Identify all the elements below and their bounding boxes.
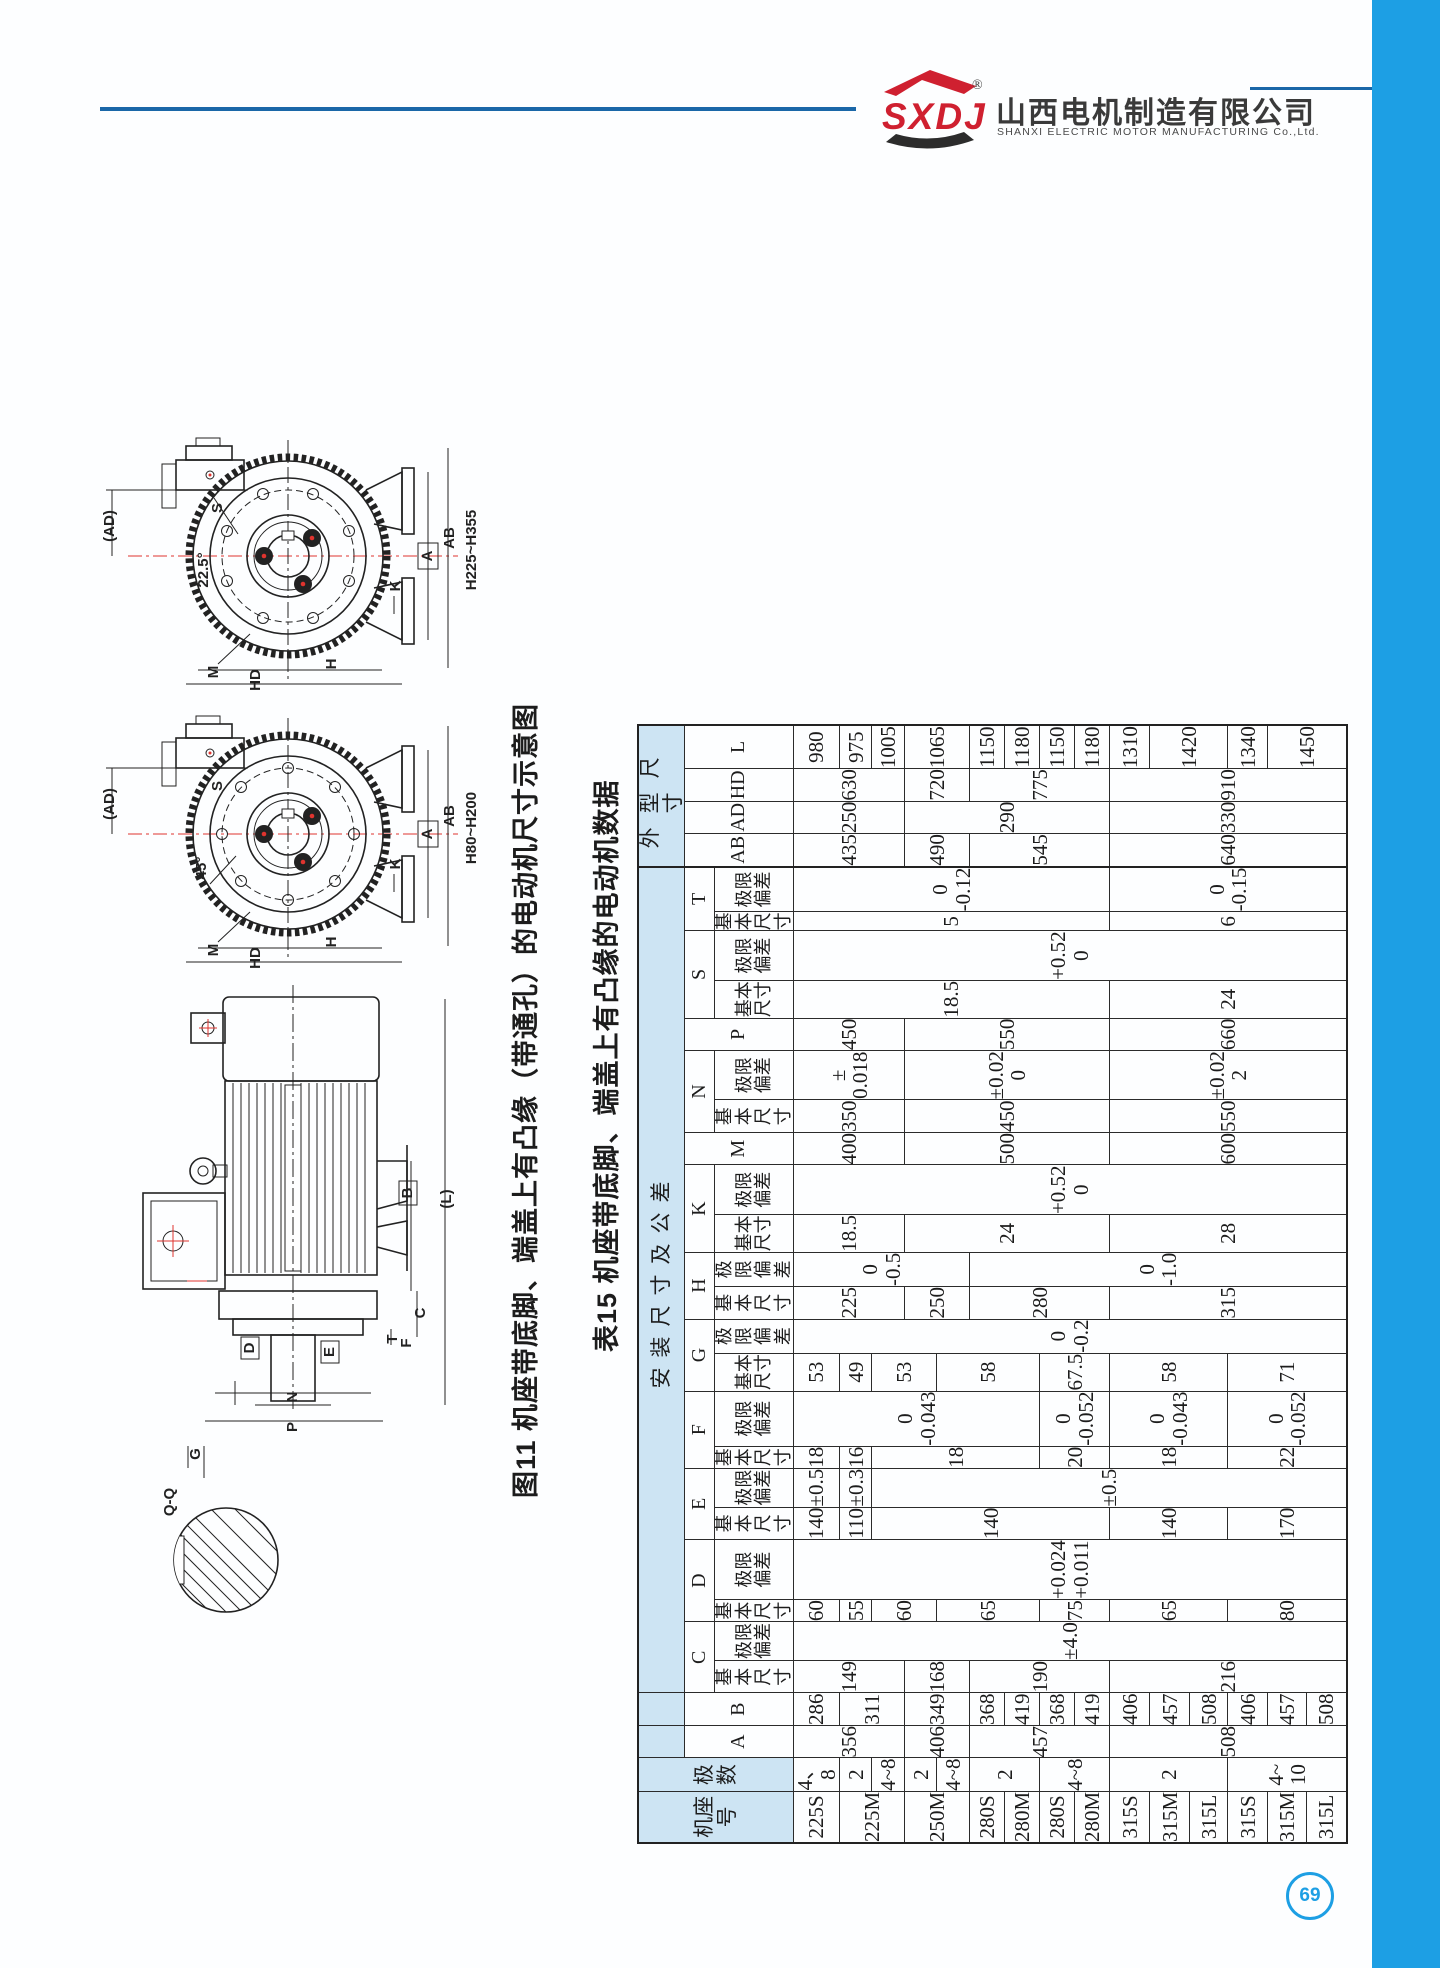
table-cell: 80 [1228,1600,1347,1622]
section-title-qq: Q-Q [161,1488,178,1517]
table-cell: 450 [794,1018,905,1051]
table-cell: 6 [1110,912,1347,931]
table-cell: 216 [1110,1660,1347,1693]
dim-label-ab: AB [441,805,458,827]
table-cell: ±0.3 [840,1468,872,1507]
table-cell: 550 [1110,1100,1347,1133]
table-header-cell: G [685,1319,715,1391]
table-header-cell: P [685,1018,794,1051]
table-cell: 508 [1307,1693,1347,1726]
table-header-cell: 基本 尺寸 [715,1660,794,1693]
dim-label-k: K [387,580,404,591]
dim-label-a: A [419,550,436,561]
table-cell: 71 [1228,1353,1347,1391]
dim-label-s: S [209,781,226,791]
table-cell: 330 [1110,801,1347,834]
table-cell: 250 [905,1287,970,1320]
table-cell: 1180 [1005,725,1040,769]
registered-mark: ® [972,78,983,94]
dimension-table: 机座 号极数安装尺寸及公差外型尺寸ABCDEFGHKMNPSTABADHDL基本… [637,724,1348,1844]
dim-label-a: A [419,828,436,839]
table-cell: 280S [1040,1791,1075,1843]
dim-label-m: M [205,944,222,957]
dim-label-h: H [323,659,340,670]
table-header-cell: L [685,725,794,769]
table-cell: 58 [1110,1353,1228,1391]
table-cell: 65 [1110,1600,1228,1622]
table-cell: 640 [1110,834,1347,867]
table-header-cell: AD [685,801,794,834]
table-cell: 368 [1040,1693,1075,1726]
table-cell: 5 [794,912,1110,931]
table-cell: 24 [905,1215,1110,1253]
table-cell: 4~ 10 [1228,1758,1347,1791]
terminal-box [143,1193,225,1289]
table-cell: 4~8 [872,1758,905,1791]
header-rule-left [100,107,856,111]
table-cell: 1340 [1228,725,1268,769]
dim-label-g: G [187,1448,204,1460]
table-header-cell: 极限 偏差 [715,1051,794,1100]
table-cell: 22 [1228,1446,1347,1468]
table-header-cell [638,1693,685,1726]
table-cell: 406 [1110,1693,1150,1726]
table-cell: ±0.5 [794,1468,840,1507]
table-cell: 315S [1110,1791,1150,1843]
end-view-geometry [106,438,458,684]
table-header-cell: 基本 尺寸 [715,1600,794,1622]
table-cell: 356 [794,1725,905,1758]
table-cell: 18 [794,1446,840,1468]
table-cell: ±0.5 [872,1468,1347,1507]
angle-label: 45° [193,857,210,880]
table-cell: 53 [794,1353,840,1391]
shaft-section-detail: G Q-Q [148,1438,288,1648]
table-cell: 140 [872,1507,1110,1540]
dim-label-k: K [387,858,404,869]
dim-label-c: C [412,1307,429,1318]
table-header-cell: 外型尺寸 [638,725,685,867]
table-cell: 0 -0.043 [794,1391,1040,1446]
series-label-h80-h200: H80~H200 [463,792,480,864]
table-cell: 406 [1228,1693,1268,1726]
eye-bolt [190,1158,227,1184]
table-cell: 75 [1040,1600,1110,1622]
table-header-cell: 基本 尺寸 [715,1215,794,1253]
table-header-cell: 基本 尺寸 [715,980,794,1018]
table-cell: 457 [970,1725,1110,1758]
table-cell: 49 [840,1353,872,1391]
table-cell: 368 [970,1693,1005,1726]
table-header-cell: 基本 尺寸 [715,1446,794,1468]
table-cell: 18.5 [794,980,1110,1018]
company-name-en: SHANXI ELECTRIC MOTOR MANUFACTURING Co.,… [997,126,1320,138]
table-header-cell: F [685,1391,715,1468]
dim-label-e: E [321,1347,338,1357]
table-cell: 280M [1005,1791,1040,1843]
table-cell: 400 [794,1132,905,1165]
table-cell: 280 [970,1287,1110,1320]
table-cell: 1005 [872,725,905,769]
table-cell: ±0.02 0 [905,1051,1110,1100]
table-cell: 4~8 [1040,1758,1110,1791]
table-cell: 250M [905,1791,970,1843]
table-cell: 775 [970,769,1110,802]
table-cell: 60 [794,1600,840,1622]
table-cell: 450 [905,1100,1110,1133]
catalog-page: { "header": { "logo_text": "SXDJ", "reg_… [0,0,1440,1968]
series-label-h225-h355: H225~H355 [463,510,480,590]
dim-label-m: M [205,666,222,679]
table-cell: 2 [840,1758,872,1791]
table-header-cell: 极限 偏差 [715,1622,794,1661]
table-cell: +0.52 0 [794,931,1347,981]
table-header-cell: T [685,867,715,931]
table-header-cell: 基本 尺寸 [715,1100,794,1133]
table-cell: 435 [794,834,905,867]
table-cell: 0 -1.0 [970,1252,1347,1286]
table-cell: 18 [872,1446,1040,1468]
table-cell: ±4.0 [794,1622,1347,1661]
table-cell: 149 [794,1660,905,1693]
end-view-drawing-h225-h355: A AB K H HD (AD) 22.5° S M H225~H355 [98,438,480,690]
dim-label-hd: HD [247,947,264,969]
table-cell: 190 [970,1660,1110,1693]
dim-label-f: F [398,1338,415,1347]
dimension-lines [106,726,448,962]
table-header-cell: 极限 偏差 [715,931,794,981]
table-cell: 280M [1075,1791,1110,1843]
table-cell: 545 [970,834,1110,867]
dim-label-h: H [323,937,340,948]
table-header-cell: S [685,931,715,1018]
section-geometry [128,1426,316,1686]
end-view-drawing-h80-h200: A AB K H HD (AD) 45° S M H80~H200 [98,716,480,968]
dim-label-b: B [399,1187,416,1198]
angle-label: 22.5° [195,552,212,587]
table-cell: ± 0.018 [794,1051,905,1100]
dimension-table-rotated: 机座 号极数安装尺寸及公差外型尺寸ABCDEFGHKMNPSTABADHDL基本… [637,724,1348,1844]
table-header-cell: 基本 尺寸 [715,1287,794,1320]
terminal-box [162,716,244,786]
dim-label-p: P [284,1422,301,1432]
dim-label-n: N [284,1392,301,1403]
blue-sidebar [1372,0,1440,1968]
table-cell: 630 [794,769,905,802]
table-cell: 1065 [905,725,970,769]
table-cell: 2 [905,1758,937,1791]
table-header-cell: 基本 尺寸 [715,1507,794,1540]
table-cell: 315M [1268,1791,1307,1843]
table-header-cell: E [685,1468,715,1539]
table-cell: 419 [1005,1693,1040,1726]
table-cell: +0.52 0 [794,1165,1347,1215]
table-cell: 0 -0.052 [1228,1391,1347,1446]
table-cell: 140 [794,1507,840,1540]
table-cell: 315L [1190,1791,1228,1843]
table-cell: 2 [1110,1758,1228,1791]
table-cell: 110 [840,1507,872,1540]
table-cell: 1150 [970,725,1005,769]
table-cell: 490 [905,834,970,867]
table-cell: 0 -0.5 [794,1252,970,1286]
table-cell: 350 [794,1100,905,1133]
company-logo: SXDJ ® 山西电机制造有限公司 SHANXI ELECTRIC MOTOR … [872,52,1372,152]
dim-label-hd: HD [247,669,264,691]
table-header-cell: B [685,1693,794,1726]
table-cell: 0 -0.12 [794,867,1110,912]
dim-label-s: S [209,503,226,513]
table-header-cell: A [685,1725,794,1758]
table-header-cell: H [685,1252,715,1319]
page-number-badge: 69 [1286,1872,1334,1920]
table-cell: 225M [840,1791,905,1843]
table-header-cell: 极数 [638,1758,794,1791]
table-header-cell [638,1725,685,1758]
table-cell: 286 [794,1693,840,1726]
table-cell: 18 [1110,1446,1228,1468]
table-header-cell: 基本 尺寸 [715,1353,794,1391]
dim-label-ad: (AD) [101,788,118,820]
table-cell: 170 [1228,1507,1347,1540]
table-cell: 406 [905,1725,970,1758]
table-cell: 349 [905,1693,970,1726]
dim-label-ab: AB [441,527,458,549]
table-header-cell: M [685,1132,794,1165]
table-header-cell: HD [685,769,794,802]
table-cell: 0 -0.052 [1040,1391,1110,1446]
table-cell: 67.5 [1040,1353,1110,1391]
table-cell: 0 -0.043 [1110,1391,1228,1446]
table-cell: 660 [1110,1018,1347,1051]
table-cell: 315L [1307,1791,1347,1843]
table-cell: 315 [1110,1287,1347,1320]
logo-text: SXDJ [882,96,987,138]
table-cell: 457 [1150,1693,1190,1726]
table-cell: 60 [872,1600,937,1622]
table-header-cell: 极限 偏差 [715,1165,794,1215]
table-cell: 1150 [1040,725,1075,769]
table-header-cell: 极限 偏差 [715,1391,794,1446]
table-header-cell: 极限 偏差 [715,1468,794,1507]
table-cell: 280S [970,1791,1005,1843]
terminal-box [162,438,244,508]
table-cell: 168 [905,1660,970,1693]
table-cell: 2 [970,1758,1040,1791]
table-cell: 311 [840,1693,905,1726]
table-cell: 315M [1150,1791,1190,1843]
table-header-cell: 极限 偏差 [715,1252,794,1286]
feet [377,1145,407,1271]
table-cell: 290 [905,801,1110,834]
table-cell: 58 [937,1353,1040,1391]
table-header-cell: K [685,1165,715,1252]
table-cell: 1310 [1110,725,1150,769]
table-cell: 20 [1040,1446,1110,1468]
table-cell: 500 [905,1132,1110,1165]
table-cell: ±0.02 2 [1110,1051,1347,1100]
table-header-cell: 机座 号 [638,1791,794,1843]
table-cell: 0 -0.2 [794,1319,1347,1353]
table-cell: 315S [1228,1791,1268,1843]
table-cell: 28 [1110,1215,1347,1253]
table-cell: 1420 [1150,725,1228,769]
table-header-cell: 基本 尺寸 [715,912,794,931]
table-cell: 250 [794,801,905,834]
table-cell: 910 [1110,769,1347,802]
table-cell: 65 [937,1600,1040,1622]
table-cell: 1450 [1268,725,1347,769]
table-cell: 980 [794,725,840,769]
table-header-cell: 极限 偏差 [715,1540,794,1600]
table-cell: 24 [1110,980,1347,1018]
table-cell: 1180 [1075,725,1110,769]
table-cell: 18.5 [794,1215,905,1253]
dim-label-ad: (AD) [101,510,118,542]
table-cell: 55 [840,1600,872,1622]
table-cell: 457 [1268,1693,1307,1726]
table-header-cell: AB [685,834,794,867]
page-number: 69 [1299,1885,1320,1907]
table-cell: 600 [1110,1132,1347,1165]
table-cell: +0.024 +0.011 [794,1540,1347,1600]
table-cell: 225 [794,1287,905,1320]
table-cell: 419 [1075,1693,1110,1726]
dim-label-d: D [241,1342,258,1353]
table-header-cell: N [685,1051,715,1133]
side-view-geometry [143,985,445,1421]
figure-caption: 图11 机座带底脚、端盖上有凸缘（带通孔）的电动机尺寸示意图 [504,626,544,1498]
table-cell: 16 [840,1446,872,1468]
table-cell: 4、8 [794,1758,840,1791]
table-cell: 508 [1190,1693,1228,1726]
side-view-drawing: B C (L) D E T F N P [95,985,465,1445]
table-header-cell: D [685,1540,715,1622]
table-cell: 53 [872,1353,937,1391]
table-cell: 0 -0.15 [1110,867,1347,912]
table-header-cell: 极限 偏差 [715,867,794,912]
table-cell: 140 [1110,1507,1228,1540]
table-cell: 720 [905,769,970,802]
dim-label-l: (L) [438,1189,455,1208]
table-header-cell: 安装尺寸及公差 [638,867,685,1693]
table-cell: 508 [1110,1725,1347,1758]
table-header-cell: C [685,1622,715,1693]
table-cell: 225S [794,1791,840,1843]
table-title: 表15 机座带底脚、端盖上有凸缘的电动机数据 [585,832,623,1352]
table-cell: 975 [840,725,872,769]
table-cell: 550 [905,1018,1110,1051]
table-header-cell: 极限 偏差 [715,1319,794,1353]
end-view-geometry [106,716,458,962]
table-cell: 4~8 [937,1758,970,1791]
dimension-lines [106,448,448,684]
